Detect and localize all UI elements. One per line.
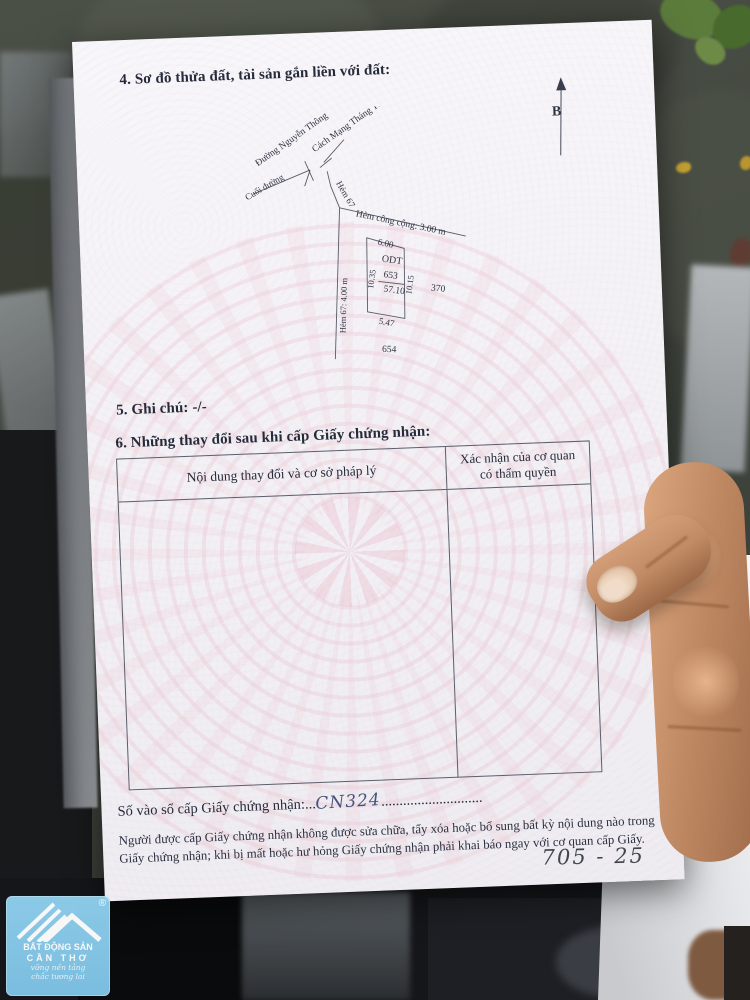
logo-name-line1: BẤT ĐỘNG SẢN [23, 942, 93, 953]
thumb-crease [645, 535, 688, 569]
finger-crease [659, 599, 729, 608]
north-arrow-head [556, 77, 566, 90]
end-of-road-label: Cuối đường [243, 172, 286, 202]
changes-table-col2-empty [447, 484, 601, 777]
logo-slogan-line1: vững nền tảng [31, 963, 86, 972]
finger-crease [667, 725, 741, 732]
parcel-area: 57.10 [383, 284, 406, 297]
street-cmt8-label: Cách Mạng Tháng Tám [311, 102, 391, 155]
logo-slogan: vững nền tảng chắc tương lai [31, 963, 86, 982]
brown-leaf [730, 238, 750, 268]
land-use-code: ODT [381, 254, 403, 268]
photo-of-land-certificate: 4. Sơ đồ thửa đất, tài sản gắn liền với … [0, 0, 750, 1000]
thumb-fingernail [590, 558, 644, 609]
edge-right-dim: 10.15 [403, 275, 416, 295]
agency-logo: ® BẤT ĐỘNG SẢN CẦN THƠ vững nền tảng chắ… [6, 896, 110, 996]
changes-table-col1-empty [119, 490, 458, 790]
knuckle-highlight [671, 640, 741, 723]
gray-pillar-bottom [242, 892, 410, 1000]
edge-top-dim: 6.00 [377, 237, 395, 250]
edge-left-dim: 10.35 [365, 269, 378, 289]
registered-trademark-icon: ® [99, 898, 106, 909]
parcel-number: 653 [383, 270, 399, 282]
public-alley-label: Hẻm công cộng: 3.00 m [355, 209, 447, 238]
gray-car-panel-right [681, 264, 750, 472]
alley-67-label: Hẻm 67 [334, 179, 357, 209]
changes-table-body [119, 484, 602, 790]
changes-table: Nội dung thay đổi và cơ sở pháp lý Xác n… [116, 440, 602, 790]
logo-name-line2: CẦN THƠ [27, 953, 90, 963]
adjacent-parcel-right: 370 [430, 283, 445, 294]
street-nguyen-thong-label: Đường Nguyễn Thông [253, 110, 330, 169]
section5-title: 5. Ghi chú: -/- [116, 399, 207, 419]
north-label: B [552, 104, 562, 119]
handwritten-note: 705 - 25 [541, 844, 645, 870]
certificate-page: 4. Sơ đồ thửa đất, tài sản gắn liền với … [72, 20, 685, 902]
plot-diagram: Đường Nguyễn Thông Cách Mạng Tháng Tám C… [227, 102, 507, 382]
dark-corner-bottom-right [724, 926, 750, 1000]
logo-slogan-line2: chắc tương lai [31, 972, 86, 981]
house-roof-icon [6, 896, 110, 942]
alley-67-width-label: Hẻm 67: 4.00 m [337, 277, 349, 333]
yellow-leaf [740, 156, 750, 170]
serial-dots-right: ............................ [381, 790, 483, 810]
serial-value-handwritten: CN324 [315, 790, 381, 814]
edge-bottom-dim: 5.47 [378, 316, 396, 329]
adjacent-parcel-bottom: 654 [382, 345, 397, 355]
changes-table-col2-header: Xác nhận của cơ quan có thẩm quyền [445, 441, 590, 488]
north-arrow: B [542, 72, 586, 165]
